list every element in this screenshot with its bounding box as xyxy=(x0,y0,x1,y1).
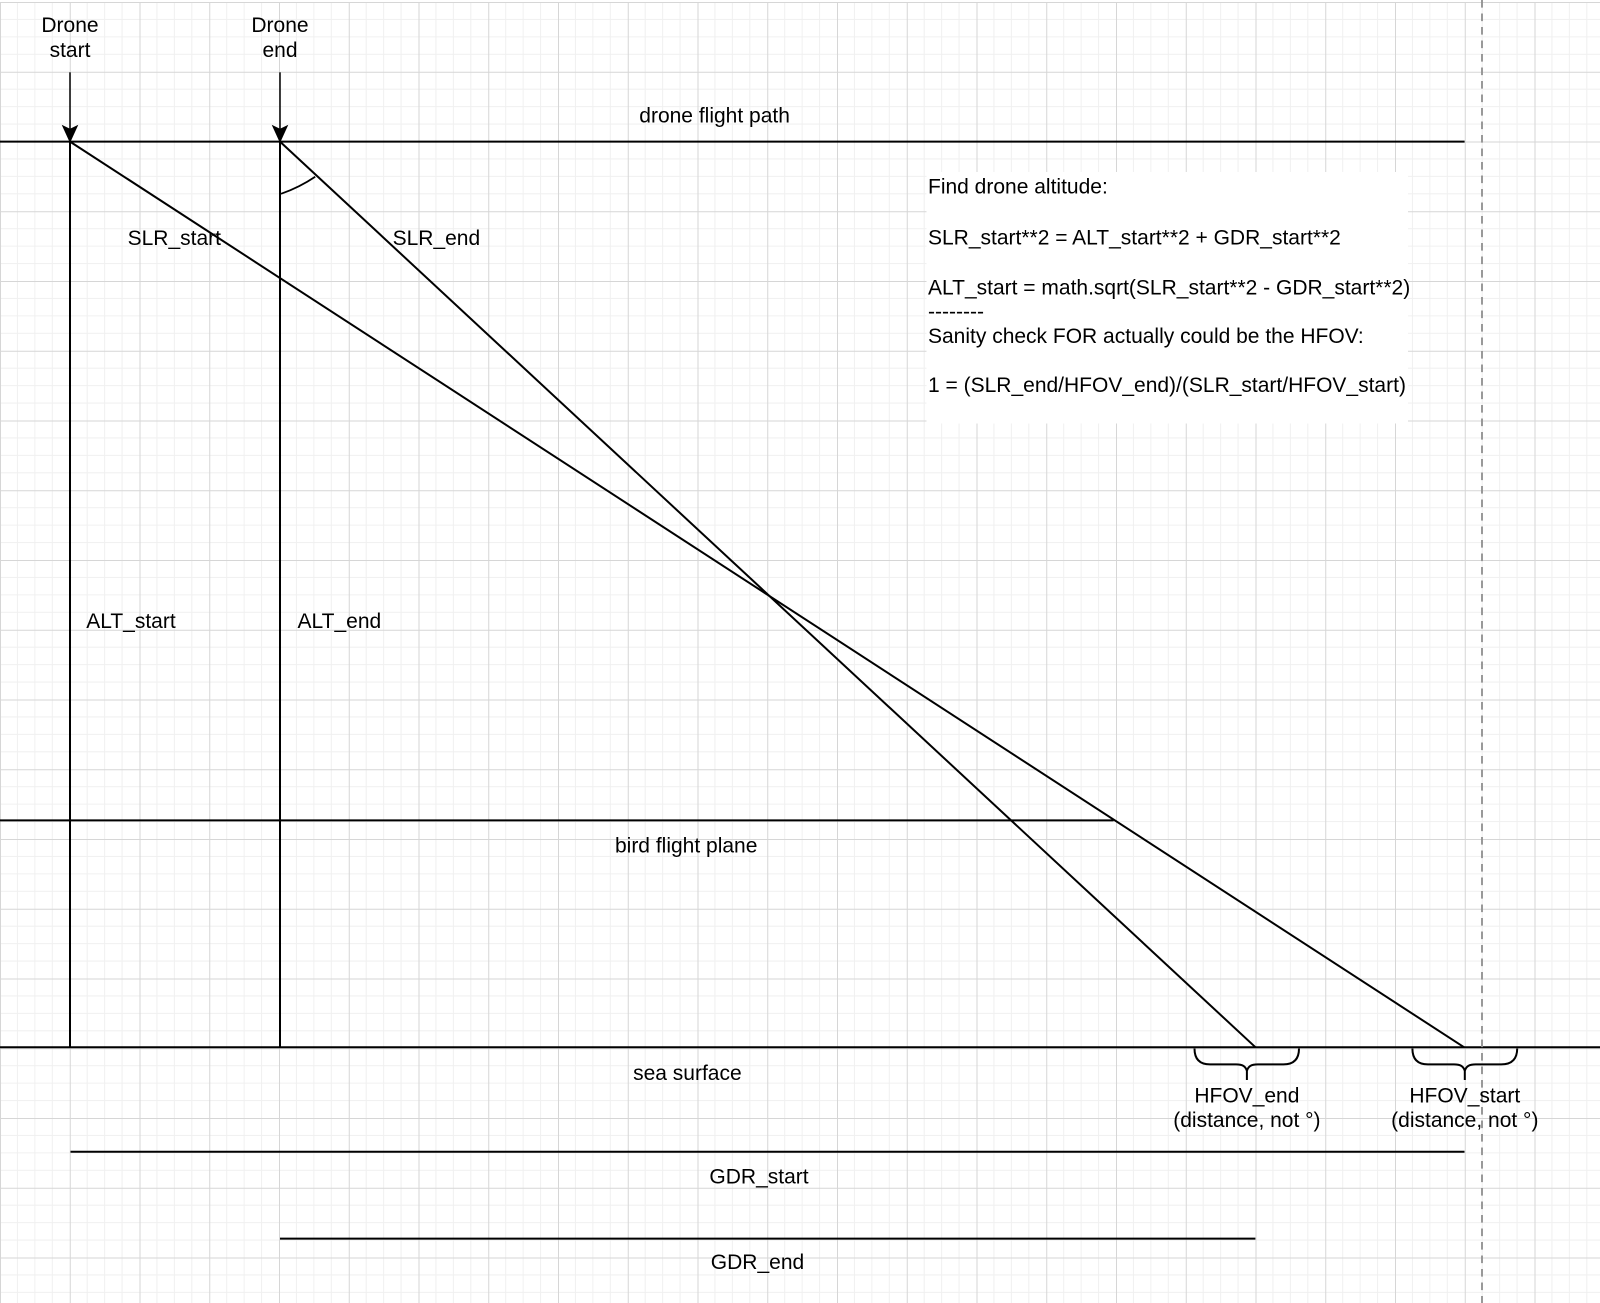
svg-text:SLR_start**2 = ALT_start**2 +: SLR_start**2 = ALT_start**2 + GDR_start*… xyxy=(928,226,1341,249)
svg-text:sea surface: sea surface xyxy=(633,1062,742,1085)
svg-text:GDR_start: GDR_start xyxy=(709,1166,808,1189)
svg-text:end: end xyxy=(262,39,297,62)
svg-text:HFOV_end: HFOV_end xyxy=(1194,1085,1299,1108)
svg-text:bird flight plane: bird flight plane xyxy=(615,835,757,858)
svg-text:GDR_end: GDR_end xyxy=(711,1251,804,1274)
svg-text:SLR_start: SLR_start xyxy=(128,227,222,250)
svg-text:ALT_end: ALT_end xyxy=(298,610,382,633)
svg-text:drone flight path: drone flight path xyxy=(639,105,790,128)
svg-text:start: start xyxy=(50,39,91,62)
svg-text:HFOV_start: HFOV_start xyxy=(1409,1085,1520,1108)
svg-text:(distance, not °): (distance, not °) xyxy=(1391,1109,1538,1132)
svg-text:Find drone altitude:: Find drone altitude: xyxy=(928,176,1108,199)
svg-text:Drone: Drone xyxy=(251,14,308,37)
svg-text:(distance, not °): (distance, not °) xyxy=(1173,1109,1320,1132)
svg-text:--------: -------- xyxy=(928,301,984,324)
svg-text:Drone: Drone xyxy=(41,14,98,37)
svg-text:Sanity check FOR actually coul: Sanity check FOR actually could be the H… xyxy=(928,325,1364,348)
svg-text:ALT_start: ALT_start xyxy=(86,610,176,633)
svg-text:SLR_end: SLR_end xyxy=(393,227,481,250)
svg-text:ALT_start = math.sqrt(SLR_star: ALT_start = math.sqrt(SLR_start**2 - GDR… xyxy=(928,276,1410,299)
svg-text:1 = (SLR_end/HFOV_end)/(SLR_st: 1 = (SLR_end/HFOV_end)/(SLR_start/HFOV_s… xyxy=(928,374,1406,397)
